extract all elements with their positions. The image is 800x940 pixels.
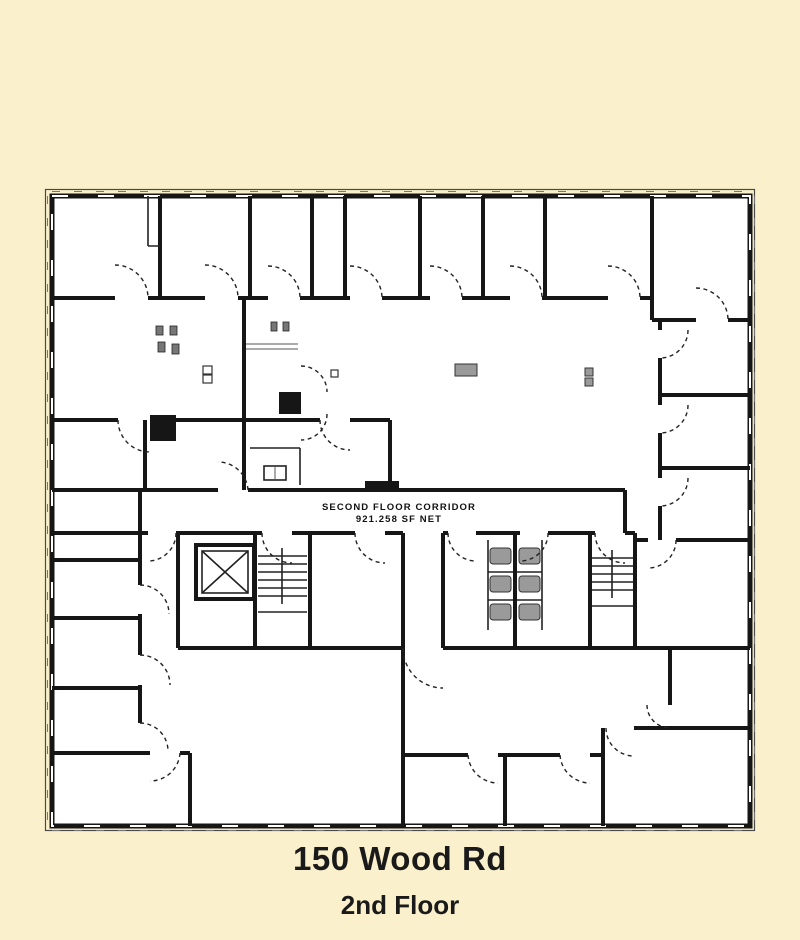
toilet-icon (490, 576, 511, 592)
floor-plan-drawing: SECOND FLOOR CORRIDOR 921.258 SF NET (0, 0, 800, 940)
floor-number-subtitle: 2nd Floor (0, 890, 800, 921)
corridor-label-line2: 921.258 SF NET (356, 514, 442, 525)
building-address-title: 150 Wood Rd (0, 840, 800, 878)
furniture-icon (271, 322, 277, 331)
corridor-label-line1: SECOND FLOOR CORRIDOR (322, 502, 476, 513)
furniture-icon (585, 368, 593, 376)
furniture-icon (283, 322, 289, 331)
furniture-icon (170, 326, 177, 335)
restroom-west-icon (488, 540, 513, 630)
toilet-icon (490, 548, 511, 564)
toilet-icon (519, 604, 540, 620)
furniture-icon (455, 364, 477, 376)
service-shaft-west (150, 415, 176, 441)
furniture-icon (156, 326, 163, 335)
toilet-icon (519, 576, 540, 592)
corridor-wall-bump (365, 481, 399, 489)
toilet-icon (490, 604, 511, 620)
furniture-icon (158, 342, 165, 352)
floor-plan-page: SECOND FLOOR CORRIDOR 921.258 SF NET 150… (0, 0, 800, 940)
service-shaft-center (279, 392, 301, 414)
furniture-icon (585, 378, 593, 386)
furniture-icon (172, 344, 179, 354)
